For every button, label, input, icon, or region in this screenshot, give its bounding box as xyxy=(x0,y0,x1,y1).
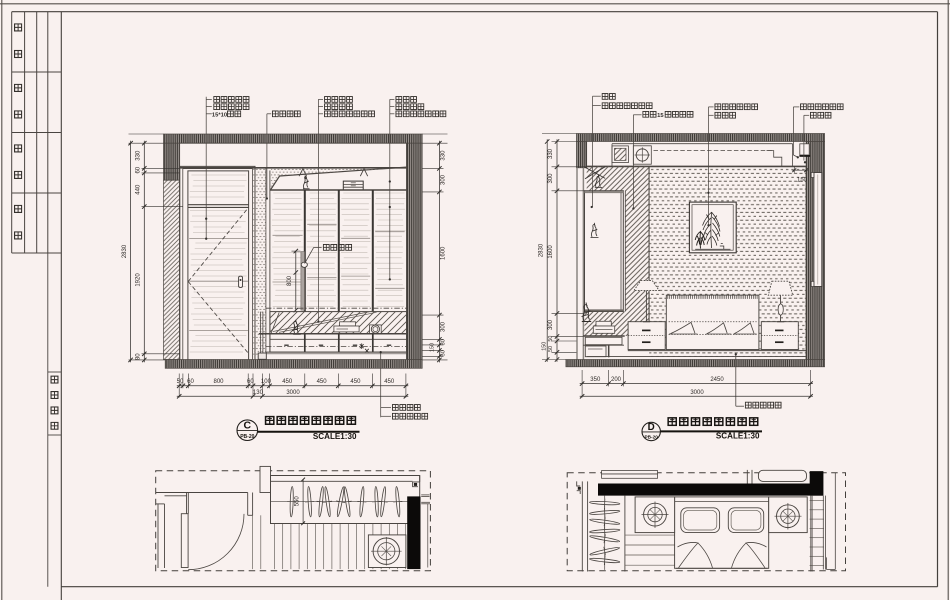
svg-text:PB-20: PB-20 xyxy=(240,434,254,440)
svg-text:330: 330 xyxy=(548,148,554,159)
svg-text:50: 50 xyxy=(441,350,447,356)
svg-text:15*10: 15*10 xyxy=(212,112,227,118)
svg-text:1920: 1920 xyxy=(136,273,142,287)
svg-text:80: 80 xyxy=(136,353,142,360)
svg-text:300: 300 xyxy=(548,173,554,184)
svg-text:130: 130 xyxy=(253,390,264,396)
svg-text:50: 50 xyxy=(441,339,447,345)
svg-text:50: 50 xyxy=(548,336,554,342)
svg-text:330: 330 xyxy=(441,150,447,161)
svg-text:1600: 1600 xyxy=(548,245,554,259)
svg-text:450: 450 xyxy=(384,379,395,385)
svg-text:800: 800 xyxy=(287,275,293,286)
svg-text:350: 350 xyxy=(590,377,601,383)
svg-text:3000: 3000 xyxy=(286,390,300,396)
svg-text:D: D xyxy=(648,422,655,433)
svg-text:SCALE1:30: SCALE1:30 xyxy=(716,432,760,441)
svg-text:60: 60 xyxy=(247,379,254,385)
svg-text:50: 50 xyxy=(548,346,554,352)
svg-text:100: 100 xyxy=(261,379,272,385)
svg-text:3000: 3000 xyxy=(690,390,704,396)
svg-text:330: 330 xyxy=(136,150,142,161)
svg-text:150: 150 xyxy=(542,342,548,351)
svg-text:800: 800 xyxy=(213,379,224,385)
svg-text:150: 150 xyxy=(797,177,808,183)
svg-text:300: 300 xyxy=(441,321,447,332)
svg-text:450: 450 xyxy=(282,379,293,385)
svg-text:60: 60 xyxy=(187,379,194,385)
svg-text:PB-20: PB-20 xyxy=(645,435,659,440)
svg-text:300: 300 xyxy=(441,174,447,185)
svg-text:C: C xyxy=(244,419,252,431)
svg-text:300: 300 xyxy=(548,319,554,330)
svg-text:15: 15 xyxy=(657,113,664,119)
svg-text:2450: 2450 xyxy=(710,377,724,383)
svg-text:2830: 2830 xyxy=(122,244,128,258)
svg-text:60: 60 xyxy=(136,166,142,173)
svg-text:550: 550 xyxy=(295,496,301,507)
svg-text:2830: 2830 xyxy=(538,243,544,257)
svg-text:150: 150 xyxy=(430,343,436,352)
svg-text:200: 200 xyxy=(611,377,622,383)
svg-text:1600: 1600 xyxy=(441,246,447,260)
svg-text:SCALE1:30: SCALE1:30 xyxy=(313,432,357,441)
svg-text:440: 440 xyxy=(136,184,142,195)
svg-text:50: 50 xyxy=(177,379,184,385)
svg-text:450: 450 xyxy=(317,379,328,385)
svg-text:450: 450 xyxy=(350,379,361,385)
